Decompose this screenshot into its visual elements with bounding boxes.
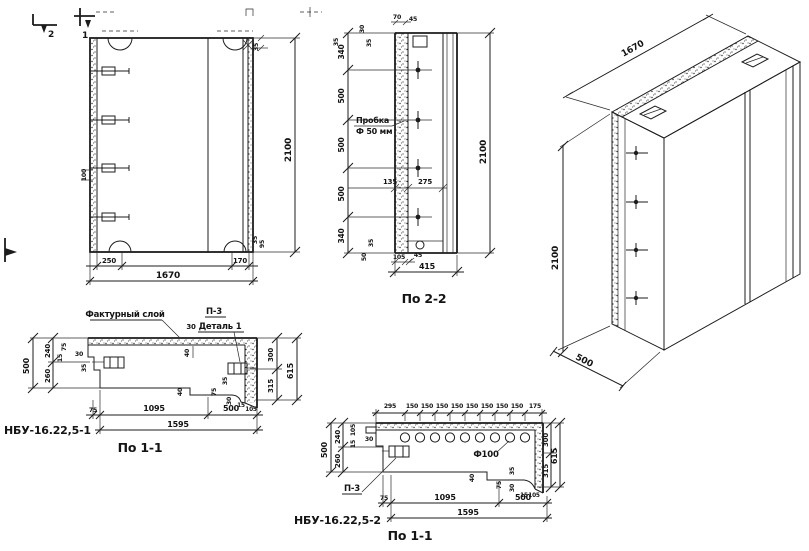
cut-mark-horizontal bbox=[5, 238, 17, 262]
dim-35: 35 bbox=[253, 43, 260, 51]
dim-bottom-small: 35 bbox=[509, 467, 516, 475]
detail-label: Деталь 1 bbox=[199, 322, 242, 332]
anchor-detail bbox=[92, 357, 124, 368]
section-2-2-view: 340 500 500 500 340 35 35 50 Пробка Ф 50… bbox=[333, 14, 495, 306]
dim-left-small: 15 bbox=[350, 440, 357, 448]
view-label: По 1-1 bbox=[118, 440, 163, 455]
bottom-recess-arc bbox=[109, 241, 131, 252]
dim-30: 30 bbox=[186, 323, 196, 331]
dim-length: 1670 bbox=[620, 39, 646, 60]
lifting-hole bbox=[742, 54, 768, 67]
dim-bottom-75: 75 bbox=[380, 495, 388, 502]
dim-side-small: 95 bbox=[259, 240, 266, 248]
facing-layer-hatch bbox=[90, 38, 97, 252]
plug-marks bbox=[626, 146, 648, 305]
dim-top: 150 bbox=[406, 403, 419, 410]
panel-mark: НБУ-16.22,5-1 bbox=[4, 424, 91, 437]
dim-right-total: 615 bbox=[286, 362, 295, 379]
hole-leader-line bbox=[497, 441, 509, 452]
view-label: По 1-1 bbox=[388, 528, 433, 543]
front-elevation-view: 100 2 1 2100 35 35 95 250 170 1670 bbox=[5, 7, 322, 285]
dim-left-bottom: 260 bbox=[334, 454, 342, 468]
dim-left-small: 30 bbox=[75, 351, 84, 358]
dim-bottom-1095: 1095 bbox=[434, 493, 456, 502]
end-tab-detail bbox=[366, 427, 376, 433]
dim-bottom-small: 75 bbox=[496, 481, 503, 489]
dim-top-small: 45 bbox=[409, 16, 417, 23]
dim-mid: 135 bbox=[383, 178, 397, 186]
dim-edge: 35 bbox=[333, 38, 340, 46]
dim-chain: 500 bbox=[337, 186, 346, 201]
dim-bottom-500: 500 bbox=[223, 404, 240, 413]
hole-row bbox=[400, 433, 529, 442]
dim-top: 150 bbox=[496, 403, 509, 410]
dim-bottom-small: 40 bbox=[177, 387, 184, 396]
plug-label-line2: Ф 50 мм bbox=[356, 127, 392, 136]
dim-right-bottom: 315 bbox=[267, 379, 275, 393]
side-facing-hatch bbox=[612, 112, 618, 327]
dim-top: 150 bbox=[466, 403, 479, 410]
dim-height: 2100 bbox=[284, 138, 294, 162]
dim-top: 150 bbox=[481, 403, 494, 410]
dim-top: 175 bbox=[529, 403, 541, 410]
dim-chain: 340 bbox=[337, 228, 346, 243]
dim-left-small: 75 bbox=[61, 343, 68, 351]
dim-top-small: 70 bbox=[393, 14, 402, 21]
dim-40: 40 bbox=[184, 348, 191, 357]
body-profile bbox=[88, 338, 245, 403]
panel-outline bbox=[90, 38, 253, 252]
dim-left-small: 105 bbox=[350, 424, 357, 436]
dim-side-small: 35 bbox=[366, 39, 373, 47]
dim-edge: 50 bbox=[361, 252, 368, 261]
dim-left-small: 15 bbox=[57, 354, 64, 362]
facing-layer-hatch bbox=[88, 338, 257, 345]
dim-bottom-small: 75 bbox=[211, 388, 218, 396]
hole-label: Ф100 bbox=[473, 450, 499, 460]
dim-bottom-total: 1595 bbox=[457, 508, 479, 517]
dim-right-top: 300 bbox=[267, 348, 275, 362]
dim-bottom-small: 40 bbox=[469, 473, 476, 482]
dim-depth: 500 bbox=[574, 353, 595, 370]
dim-top: 150 bbox=[451, 403, 464, 410]
drawing-sheet: 100 2 1 2100 35 35 95 250 170 1670 bbox=[0, 0, 809, 551]
dim-bottom-small: 30 bbox=[509, 483, 516, 492]
cut-label: 2 bbox=[48, 30, 54, 40]
p3-label: П-3 bbox=[206, 307, 222, 317]
section-1-1-a-view: Фактурный слой П-3 30 Деталь 1 40 240 26… bbox=[4, 307, 302, 455]
front-face bbox=[664, 62, 800, 350]
facing-leader-line bbox=[162, 320, 180, 338]
dim-height: 2100 bbox=[479, 140, 489, 164]
dim-right-total: 615 bbox=[550, 447, 559, 464]
facing-layer-hatch bbox=[376, 423, 543, 430]
dim-left-total: 500 bbox=[320, 441, 329, 458]
dim-left-top: 240 bbox=[334, 430, 342, 444]
side-face bbox=[612, 112, 664, 350]
dim-left-total: 500 bbox=[22, 357, 31, 374]
top-face bbox=[612, 36, 800, 138]
dim-bottom-small: 35 bbox=[222, 377, 229, 385]
dim-bottom-500: 500 bbox=[515, 493, 532, 502]
dim-top: 150 bbox=[511, 403, 524, 410]
view-label: По 2-2 bbox=[402, 291, 447, 306]
dim-top: 150 bbox=[421, 403, 434, 410]
dim-bottom-75: 75 bbox=[89, 407, 97, 414]
top-notch-detail bbox=[413, 36, 427, 47]
dim-top: 150 bbox=[436, 403, 449, 410]
dim-bottom-1095: 1095 bbox=[143, 404, 165, 413]
panel-mark: НБУ-16.22,5-2 bbox=[294, 514, 381, 527]
dim-left-top: 240 bbox=[44, 344, 52, 358]
p3-label: П-3 bbox=[344, 484, 360, 494]
dim-height: 2100 bbox=[551, 246, 561, 270]
lifting-hole bbox=[640, 106, 666, 119]
dim-bottom-right: 170 bbox=[233, 257, 247, 265]
dim-bottom-small: 105 bbox=[245, 407, 257, 413]
dim-left-bottom: 260 bbox=[44, 369, 52, 383]
plug-marks bbox=[348, 61, 432, 226]
cut-label: 1 bbox=[82, 31, 88, 41]
dim-bottom-total: 1670 bbox=[156, 271, 180, 281]
dim-chain: 500 bbox=[337, 88, 346, 103]
dim-edge: 35 bbox=[368, 239, 375, 247]
dim-bottom-left: 250 bbox=[102, 257, 116, 265]
dim-chain: 500 bbox=[337, 137, 346, 152]
dim-right-bottom: 315 bbox=[542, 464, 550, 478]
dim-anchor-spacing: 100 bbox=[81, 168, 88, 181]
cut-mark-1: 1 bbox=[74, 8, 115, 41]
facing-layer-hatch bbox=[395, 33, 408, 253]
dim-side-small: 35 bbox=[252, 236, 259, 244]
dim-right-top: 300 bbox=[542, 433, 550, 447]
bottom-hole-detail bbox=[416, 241, 424, 249]
detail-leader-line bbox=[234, 332, 240, 362]
dim-bottom-small: 45 bbox=[414, 252, 422, 259]
dim-bottom-small: 105 bbox=[393, 254, 405, 261]
section-1-1-b-view: 295 150 150 150 150 150 150 150 150 175 … bbox=[294, 403, 565, 543]
dim-width-total: 415 bbox=[419, 262, 436, 271]
dim-side-small: 30 bbox=[359, 24, 366, 33]
anchor-detail bbox=[382, 446, 409, 457]
dim-left-small: 30 bbox=[365, 436, 374, 443]
facing-layer-label: Фактурный слой bbox=[85, 310, 164, 320]
lifting-hole-arc bbox=[108, 38, 132, 50]
isometric-view: 1670 2100 500 bbox=[550, 14, 800, 391]
cut-mark-2: 2 bbox=[33, 14, 57, 40]
dim-top: 295 bbox=[384, 403, 396, 410]
dim-bottom-total: 1595 bbox=[167, 420, 189, 429]
dim-left-small: 35 bbox=[81, 364, 88, 372]
dim-mid: 275 bbox=[418, 178, 432, 186]
plug-label-line1: Пробка bbox=[356, 115, 389, 125]
